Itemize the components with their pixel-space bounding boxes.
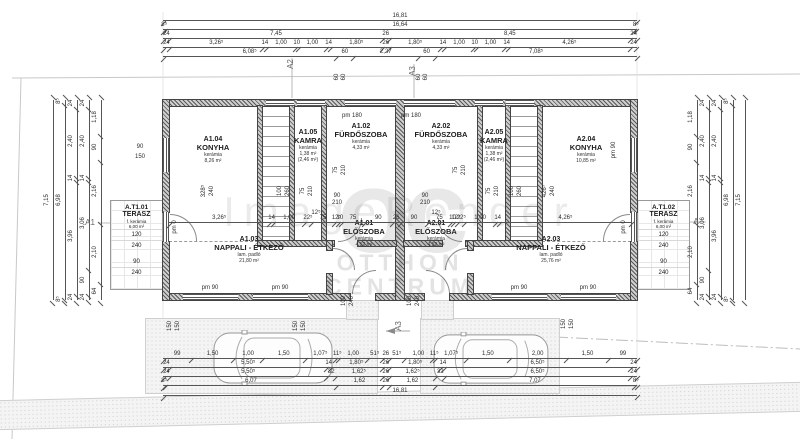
dim-chain: 6,08⁵602,27607,08⁵ bbox=[163, 49, 637, 57]
room-label-a205: A2.05KAMRAkerámia1,38 m²(2,46 m²) bbox=[480, 129, 508, 163]
dim-segment: 26 bbox=[382, 378, 389, 386]
dim-segment: 24 bbox=[82, 100, 90, 107]
terrace-dim: 120 bbox=[111, 229, 162, 240]
dim-segment: 24 bbox=[630, 360, 637, 368]
dim-segment: 1,80⁵ bbox=[389, 40, 440, 48]
dim-chain: 243,26⁵141,00101,00141,80⁵261,80⁵141,001… bbox=[163, 40, 637, 48]
dim-segment: 24 bbox=[70, 293, 78, 300]
window bbox=[266, 100, 294, 106]
dim-chain: 242,40143,9624 bbox=[70, 100, 78, 300]
annotation-12-: 12⁵ bbox=[431, 210, 440, 216]
dim-chain: 7,15 bbox=[46, 100, 54, 300]
wall-segment bbox=[538, 106, 542, 245]
dim-segment: 90 bbox=[364, 215, 392, 223]
room-rarea: 4,52 m² bbox=[415, 242, 457, 248]
dim-segment: 6,98 bbox=[726, 102, 734, 297]
annotation-210: 210 bbox=[420, 200, 430, 206]
dim-segment: 1,62⁵ bbox=[389, 369, 435, 377]
dim-segment: 1,00 bbox=[298, 40, 326, 48]
annotation-240: 240 bbox=[415, 296, 421, 306]
wall-segment bbox=[258, 106, 262, 245]
dim-segment: 16,81 bbox=[163, 13, 637, 21]
terrace-id: A.T1.01 bbox=[111, 204, 162, 211]
room-rarea: 8,26 m² bbox=[197, 158, 230, 164]
annotation-a2: A2 bbox=[288, 59, 294, 69]
window bbox=[404, 100, 455, 106]
room-label-a104: A1.04KONYHAkerámia8,26 m² bbox=[197, 136, 230, 164]
dim-segment: 1,50 bbox=[467, 351, 510, 359]
wall-segment bbox=[396, 100, 404, 300]
terrace-left: A.T1.01 TERASZ f. kerámia 6,00 m² 120 24… bbox=[110, 200, 163, 290]
room-rname: NAPPALI - ÉTKEZŐ bbox=[214, 244, 283, 252]
dim-segment: 26 bbox=[382, 31, 389, 39]
room-rname: ELŐSZOBA bbox=[343, 228, 385, 236]
dim-segment: 26 bbox=[382, 360, 389, 368]
dim-segment: 90 bbox=[94, 134, 102, 160]
dim-chain: 8⁵6,988⁵ bbox=[58, 100, 66, 300]
annotation-12-: 12⁵ bbox=[311, 210, 320, 216]
door-swing-arc bbox=[333, 248, 355, 270]
window bbox=[561, 294, 616, 300]
terrace-dim: 120 bbox=[638, 229, 689, 240]
dim-segment: 26 bbox=[382, 40, 389, 48]
window bbox=[183, 294, 238, 300]
dim-segment: 1,18 bbox=[94, 100, 102, 134]
annotation-100: 100 bbox=[277, 186, 283, 196]
annotation-pm-90: pm 90 bbox=[202, 285, 219, 291]
annotation-pm-180: pm 180 bbox=[342, 113, 362, 119]
window bbox=[163, 138, 169, 172]
dim-segment: 2,00 bbox=[509, 351, 566, 359]
window bbox=[506, 100, 534, 106]
window bbox=[345, 100, 396, 106]
dim-segment: 64 bbox=[690, 282, 698, 300]
annotation-90: 90 bbox=[334, 193, 341, 199]
dim-segment: 24 bbox=[163, 369, 170, 377]
annotation-75: 75 bbox=[300, 188, 306, 195]
room-rarea: 4,33 m² bbox=[415, 145, 468, 151]
annotation-150: 150 bbox=[293, 321, 299, 331]
room-label-a105: A1.05KAMRAkerámia1,38 m²(2,46 m²) bbox=[294, 129, 322, 163]
dim-segment: 2,16 bbox=[690, 160, 698, 222]
dim-segment: 24 bbox=[163, 40, 170, 48]
dim-segment: 4,26⁵ bbox=[500, 215, 631, 223]
annotation-75: 75 bbox=[486, 188, 492, 195]
dim-segment: 1,62⁵ bbox=[336, 369, 382, 377]
dim-segment: 6,50⁵ bbox=[445, 360, 630, 368]
window bbox=[475, 100, 503, 106]
dim-segment: 90 bbox=[690, 134, 698, 160]
annotation-a: A bbox=[693, 219, 698, 225]
wall-segment bbox=[478, 106, 482, 245]
room-rarea: 4,52 m² bbox=[343, 242, 385, 248]
annotation-75: 75 bbox=[453, 167, 459, 174]
dim-segment: 2,10 bbox=[690, 221, 698, 281]
annotation-a1: A1 bbox=[85, 220, 95, 226]
dim-segment: 3,26⁵ bbox=[169, 215, 269, 223]
dim-segment: 5,50⁵ bbox=[170, 369, 327, 377]
annotation-260: 260 bbox=[285, 186, 291, 196]
dim-segment: 51⁵ bbox=[367, 351, 382, 359]
dim-chain: 242,40143,9624 bbox=[714, 100, 722, 300]
dim-segment: 24 bbox=[714, 100, 722, 107]
annotation-a3: A3 bbox=[396, 321, 402, 331]
floor-plan-canvas: A.T1.01 TERASZ f. kerámia 6,00 m² 120 24… bbox=[0, 0, 800, 439]
dim-segment: 7,15 bbox=[738, 100, 746, 300]
dim-segment: 6,08⁵ bbox=[163, 49, 336, 57]
room-label-a202: A2.02FÜRDŐSZOBAkerámia4,33 m² bbox=[415, 123, 468, 151]
room-rname: ELŐSZOBA bbox=[415, 228, 457, 236]
dim-chain: 242,40143,069024 bbox=[82, 100, 90, 300]
dim-segment: 2,40 bbox=[702, 107, 710, 176]
dim-segment: 22⁵ bbox=[458, 215, 465, 223]
dim-segment: 1,00 bbox=[445, 40, 473, 48]
dim-segment: 24 bbox=[630, 369, 637, 377]
door-swing-arc bbox=[426, 270, 450, 294]
terrace-dim: 90 bbox=[111, 257, 162, 267]
dim-chain: 245,50⁵321,62⁵261,62⁵326,50⁵24 bbox=[163, 369, 637, 377]
dim-segment: 75 bbox=[341, 215, 364, 223]
dim-segment: 3,96 bbox=[714, 180, 722, 293]
dim-segment: 24 bbox=[702, 100, 710, 107]
annotation-pm-90: pm 90 bbox=[511, 285, 528, 291]
dim-segment: 75 bbox=[428, 215, 451, 223]
dim-segment: 60 bbox=[336, 49, 353, 57]
dim-segment: 24 bbox=[630, 40, 637, 48]
dim-segment: 2,27 bbox=[353, 49, 418, 57]
dim-segment: 24 bbox=[82, 293, 90, 300]
annotation-150: 150 bbox=[301, 321, 307, 331]
dim-segment: 32 bbox=[436, 369, 445, 377]
dim-segment: 60 bbox=[418, 49, 435, 57]
dim-segment: 24 bbox=[163, 360, 170, 368]
dim-segment: 1,00 bbox=[267, 40, 295, 48]
room-rname: KAMRA bbox=[294, 137, 322, 145]
annotation-150: 150 bbox=[167, 321, 173, 331]
wall-segment bbox=[468, 274, 473, 294]
dim-segment: 1,50 bbox=[262, 351, 305, 359]
annotation-328-: 328⁵ bbox=[201, 185, 207, 198]
dim-segment: 1,00 bbox=[274, 215, 305, 223]
dim-segment: 2,40 bbox=[714, 107, 722, 176]
dim-segment: 26 bbox=[382, 351, 389, 359]
dim-segment: 1,00 bbox=[404, 351, 432, 359]
annotation-75: 75 bbox=[333, 167, 339, 174]
dim-chain: 16,81 bbox=[163, 13, 637, 21]
dim-segment: 26 bbox=[392, 215, 400, 223]
dim-chain: 8⁵16,648⁵ bbox=[163, 22, 637, 30]
dim-segment: 1,07⁵ bbox=[305, 351, 336, 359]
annotation-pm-90: pm 90 bbox=[272, 285, 289, 291]
dim-segment: 1,50 bbox=[191, 351, 234, 359]
room-rname: KAMRA bbox=[480, 137, 508, 145]
annotation-100: 100 bbox=[407, 296, 413, 306]
annotation-pm-90: pm 90 bbox=[580, 285, 597, 291]
terrace-dim: 240 bbox=[638, 267, 689, 278]
dim-segment: 2,40 bbox=[70, 107, 78, 176]
annotation-260: 260 bbox=[517, 186, 523, 196]
dim-segment: 2,40 bbox=[82, 107, 90, 176]
terrace-dim: 240 bbox=[111, 240, 162, 251]
annotation-pm-0: pm 0 bbox=[172, 220, 178, 233]
terrace-right: A.T1.02 TERASZ f. kerámia 6,00 m² 120 24… bbox=[637, 200, 690, 290]
window bbox=[297, 100, 325, 106]
wall-segment bbox=[290, 106, 294, 245]
dim-segment: 8⁵ bbox=[635, 378, 637, 386]
terrace-name: TERASZ bbox=[638, 211, 689, 219]
dim-segment: 2,16 bbox=[94, 160, 102, 222]
dim-chain: 991,501,001,501,07⁵11⁵1,0051⁵2651⁵1,0011… bbox=[163, 351, 637, 359]
dim-segment: 8⁵ bbox=[635, 22, 637, 30]
window bbox=[492, 294, 547, 300]
dim-segment: 6,98 bbox=[58, 102, 66, 297]
room-rname: NAPPALI - ÉTKEZŐ bbox=[516, 244, 585, 252]
room-rarea: 4,33 m² bbox=[335, 145, 388, 151]
dim-segment: 4,26⁵ bbox=[509, 40, 630, 48]
dim-segment: 8⁵ bbox=[58, 298, 66, 300]
room-rname: FÜRDŐSZOBA bbox=[415, 131, 468, 139]
dim-segment: 24 bbox=[70, 100, 78, 107]
dim-segment: 32 bbox=[327, 369, 336, 377]
dim-segment: 26 bbox=[382, 369, 389, 377]
room-rarea: 21,80 m² bbox=[214, 258, 283, 264]
annotation-210: 210 bbox=[308, 186, 314, 196]
dim-segment: 3,26⁵ bbox=[170, 40, 263, 48]
annotation-90: 90 bbox=[137, 144, 144, 150]
terrace-dim: 240 bbox=[111, 267, 162, 278]
dim-segment: 6,50⁵ bbox=[445, 369, 630, 377]
annotation-60: 60 bbox=[341, 74, 347, 81]
wall-segment bbox=[631, 242, 637, 300]
dim-segment: 24 bbox=[702, 293, 710, 300]
annotation-240: 240 bbox=[349, 296, 355, 306]
annotation-210: 210 bbox=[461, 165, 467, 175]
window bbox=[631, 138, 637, 172]
dim-segment: 1,50 bbox=[566, 351, 609, 359]
dim-chain: 16,81 bbox=[163, 388, 637, 396]
dim-chain: 3,26⁵141,0022⁵7512⁵1075902690751012⁵22⁵1… bbox=[169, 215, 631, 223]
dim-segment: 16,64 bbox=[165, 22, 634, 30]
room-rarea: (2,46 m²) bbox=[480, 157, 508, 163]
dim-segment: 7,08⁵ bbox=[435, 49, 637, 57]
wall-segment bbox=[322, 106, 326, 245]
dim-segment: 90 bbox=[400, 215, 428, 223]
terrace-name: TERASZ bbox=[111, 211, 162, 219]
dim-chain: 8⁵6,988⁵ bbox=[726, 100, 734, 300]
room-rarea: (2,46 m²) bbox=[294, 157, 322, 163]
dim-segment: 1,80⁵ bbox=[331, 360, 382, 368]
annotation-100: 100 bbox=[341, 296, 347, 306]
room-label-a204: A2.04KONYHAkerámia10,85 m² bbox=[570, 136, 603, 164]
room-label-a102: A1.02FÜRDŐSZOBAkerámia4,33 m² bbox=[335, 123, 388, 151]
dim-segment: 24 bbox=[714, 293, 722, 300]
annotation-150: 150 bbox=[569, 319, 575, 329]
dim-chain: 245,50⁵141,80⁵261,80⁵146,50⁵24 bbox=[163, 360, 637, 368]
dim-segment: 64 bbox=[94, 282, 102, 300]
dim-segment: 51⁵ bbox=[389, 351, 404, 359]
annotation-150: 150 bbox=[175, 321, 181, 331]
dim-segment: 7,45 bbox=[170, 31, 382, 39]
room-rarea: 25,76 m² bbox=[516, 258, 585, 264]
dim-segment: 16,81 bbox=[163, 388, 637, 396]
dim-segment: 1,62 bbox=[390, 378, 436, 386]
wall-segment bbox=[163, 242, 169, 300]
dim-chain: 247,45268,4524 bbox=[163, 31, 637, 39]
door-swing-arc bbox=[352, 270, 376, 294]
dim-segment: 1,00 bbox=[465, 215, 496, 223]
terrace-dim: 90 bbox=[638, 257, 689, 267]
annotation-100: 100 bbox=[509, 186, 515, 196]
dim-segment: 7,15 bbox=[46, 100, 54, 300]
annotation-a3: A3 bbox=[410, 66, 416, 76]
dim-segment: 24 bbox=[163, 31, 170, 39]
dim-chain: 7,15 bbox=[738, 100, 746, 300]
room-rname: KONYHA bbox=[197, 144, 230, 152]
wall-segment bbox=[327, 241, 332, 250]
dim-segment: 7,07 bbox=[435, 378, 634, 386]
wall-segment bbox=[506, 106, 510, 245]
dim-chain: 8⁵6,071,62261,627,078⁵ bbox=[163, 378, 637, 386]
dim-chain: 1,18902,162,1064 bbox=[94, 100, 102, 300]
annotation-210: 210 bbox=[494, 186, 500, 196]
dim-segment: 2,10 bbox=[94, 221, 102, 281]
annotation-426-: 426⁵ bbox=[542, 185, 548, 198]
dim-segment: 5,50⁵ bbox=[170, 360, 327, 368]
dim-segment: 6,07 bbox=[165, 378, 336, 386]
dim-chain: 1,18902,162,1064 bbox=[690, 100, 698, 300]
room-label-a203: A2.03NAPPALI - ÉTKEZŐlam. padló25,76 m² bbox=[516, 236, 585, 264]
dim-segment: 24 bbox=[630, 31, 637, 39]
dim-segment: 3,96 bbox=[70, 180, 78, 293]
annotation-60: 60 bbox=[334, 74, 340, 81]
dim-segment: 8⁵ bbox=[726, 298, 734, 300]
annotation-90: 90 bbox=[422, 193, 429, 199]
entry-walkway-right bbox=[421, 300, 454, 320]
dim-segment: 3,06 bbox=[702, 180, 710, 268]
dim-segment: 1,62 bbox=[337, 378, 383, 386]
wall-segment bbox=[327, 274, 332, 294]
room-label-a103: A1.03NAPPALI - ÉTKEZŐlam. padló21,80 m² bbox=[214, 236, 283, 264]
dim-segment: 99 bbox=[609, 351, 637, 359]
dim-chain: 242,40143,069024 bbox=[702, 100, 710, 300]
dim-segment: 1,80⁵ bbox=[389, 360, 440, 368]
dim-segment: 1,18 bbox=[690, 100, 698, 134]
dim-segment: 99 bbox=[163, 351, 191, 359]
annotation-pm-180: pm 180 bbox=[401, 113, 421, 119]
room-rname: KONYHA bbox=[570, 144, 603, 152]
annotation-210: 210 bbox=[332, 200, 342, 206]
dim-segment: 8,45 bbox=[389, 31, 630, 39]
annotation-150: 150 bbox=[135, 154, 145, 160]
room-rname: FÜRDŐSZOBA bbox=[335, 131, 388, 139]
dim-segment: 90 bbox=[702, 267, 710, 293]
annotation-210: 210 bbox=[341, 165, 347, 175]
annotation-240: 240 bbox=[209, 186, 215, 196]
dim-segment: 90 bbox=[82, 267, 90, 293]
dim-segment: 1,07⁵ bbox=[436, 351, 467, 359]
dim-segment: 1,80⁵ bbox=[331, 40, 382, 48]
terrace-id: A.T1.02 bbox=[638, 204, 689, 211]
window bbox=[253, 294, 308, 300]
door-swing-arc bbox=[445, 248, 467, 270]
dim-segment: 22⁵ bbox=[305, 215, 312, 223]
terrace-dim: 240 bbox=[638, 240, 689, 251]
annotation-60: 60 bbox=[423, 74, 429, 81]
dim-segment: 1,00 bbox=[339, 351, 367, 359]
annotation-240: 240 bbox=[550, 186, 556, 196]
dim-segment: 1,00 bbox=[234, 351, 262, 359]
annotation-pm-90: pm 90 bbox=[611, 142, 617, 159]
annotation-pm-0: pm 0 bbox=[621, 220, 627, 233]
room-rarea: 10,85 m² bbox=[570, 158, 603, 164]
window bbox=[631, 212, 637, 242]
wall-segment bbox=[468, 241, 473, 250]
annotation-150: 150 bbox=[561, 319, 567, 329]
dim-segment: 1,00 bbox=[476, 40, 504, 48]
